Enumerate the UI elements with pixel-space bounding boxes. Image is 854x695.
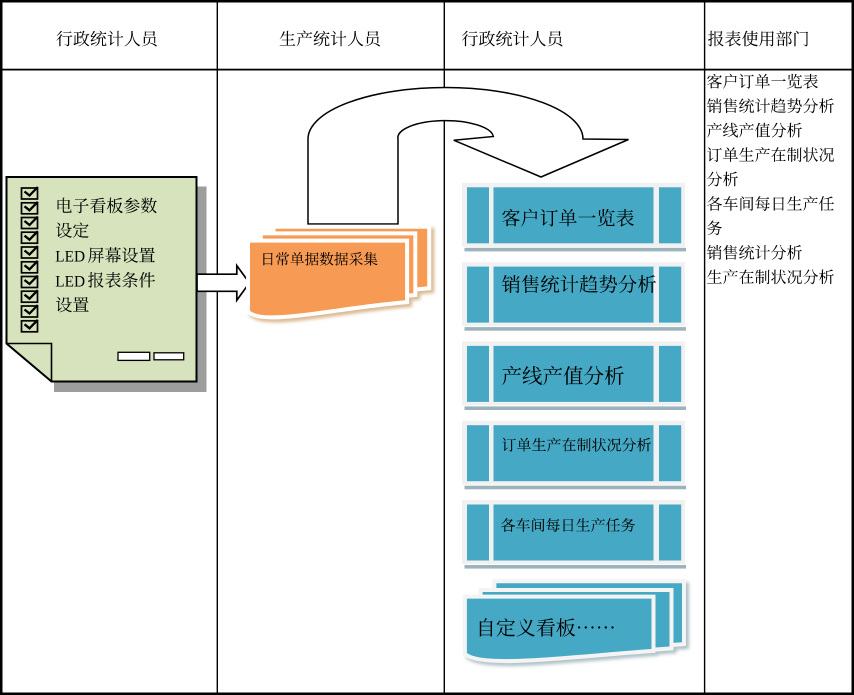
svg-text:LED: LED xyxy=(55,249,85,266)
svg-text:LED: LED xyxy=(55,273,85,290)
